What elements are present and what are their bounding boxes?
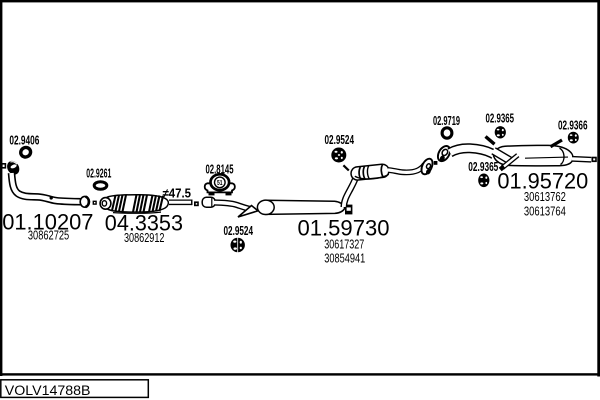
svg-text:VOLV14788B: VOLV14788B xyxy=(5,383,91,399)
svg-text:30613764: 30613764 xyxy=(524,203,566,218)
svg-text:02.8145: 02.8145 xyxy=(206,161,234,176)
svg-text:30862725: 30862725 xyxy=(28,228,69,243)
svg-text:02.9365: 02.9365 xyxy=(468,159,498,174)
svg-text:30617327: 30617327 xyxy=(324,237,364,252)
svg-text:02.9524: 02.9524 xyxy=(224,223,254,238)
svg-text:≠47.5: ≠47.5 xyxy=(163,186,192,201)
svg-text:02.9406: 02.9406 xyxy=(9,132,39,147)
svg-text:02.9365: 02.9365 xyxy=(486,111,515,126)
svg-text:02.9261: 02.9261 xyxy=(86,165,111,180)
svg-text:02.9366: 02.9366 xyxy=(558,117,588,132)
svg-text:02.9719: 02.9719 xyxy=(433,113,460,128)
svg-text:30862912: 30862912 xyxy=(124,230,165,245)
svg-text:02.9524: 02.9524 xyxy=(325,132,355,147)
svg-text:30854941: 30854941 xyxy=(324,251,365,266)
svg-text:30613762: 30613762 xyxy=(524,189,566,204)
svg-text:51: 51 xyxy=(217,178,223,187)
